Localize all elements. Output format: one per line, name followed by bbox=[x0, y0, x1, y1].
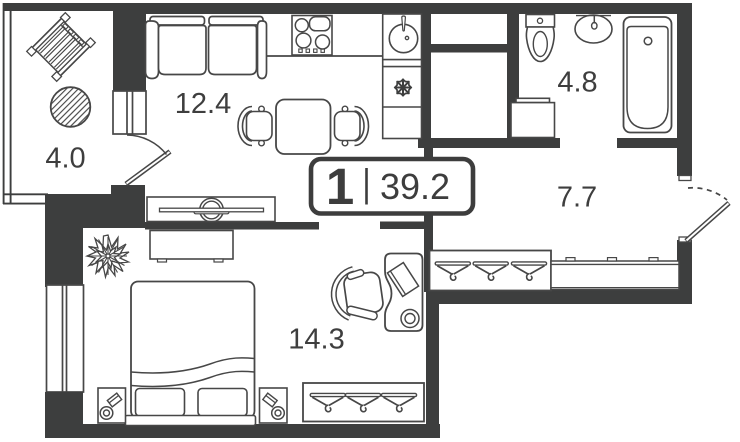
svg-text:1: 1 bbox=[326, 158, 354, 215]
svg-text:39.2: 39.2 bbox=[380, 166, 450, 207]
svg-text:4.8: 4.8 bbox=[557, 67, 597, 99]
svg-text:4.0: 4.0 bbox=[45, 143, 85, 175]
svg-text:7.7: 7.7 bbox=[557, 182, 597, 214]
svg-text:14.3: 14.3 bbox=[288, 324, 344, 356]
svg-text:12.4: 12.4 bbox=[175, 88, 231, 120]
